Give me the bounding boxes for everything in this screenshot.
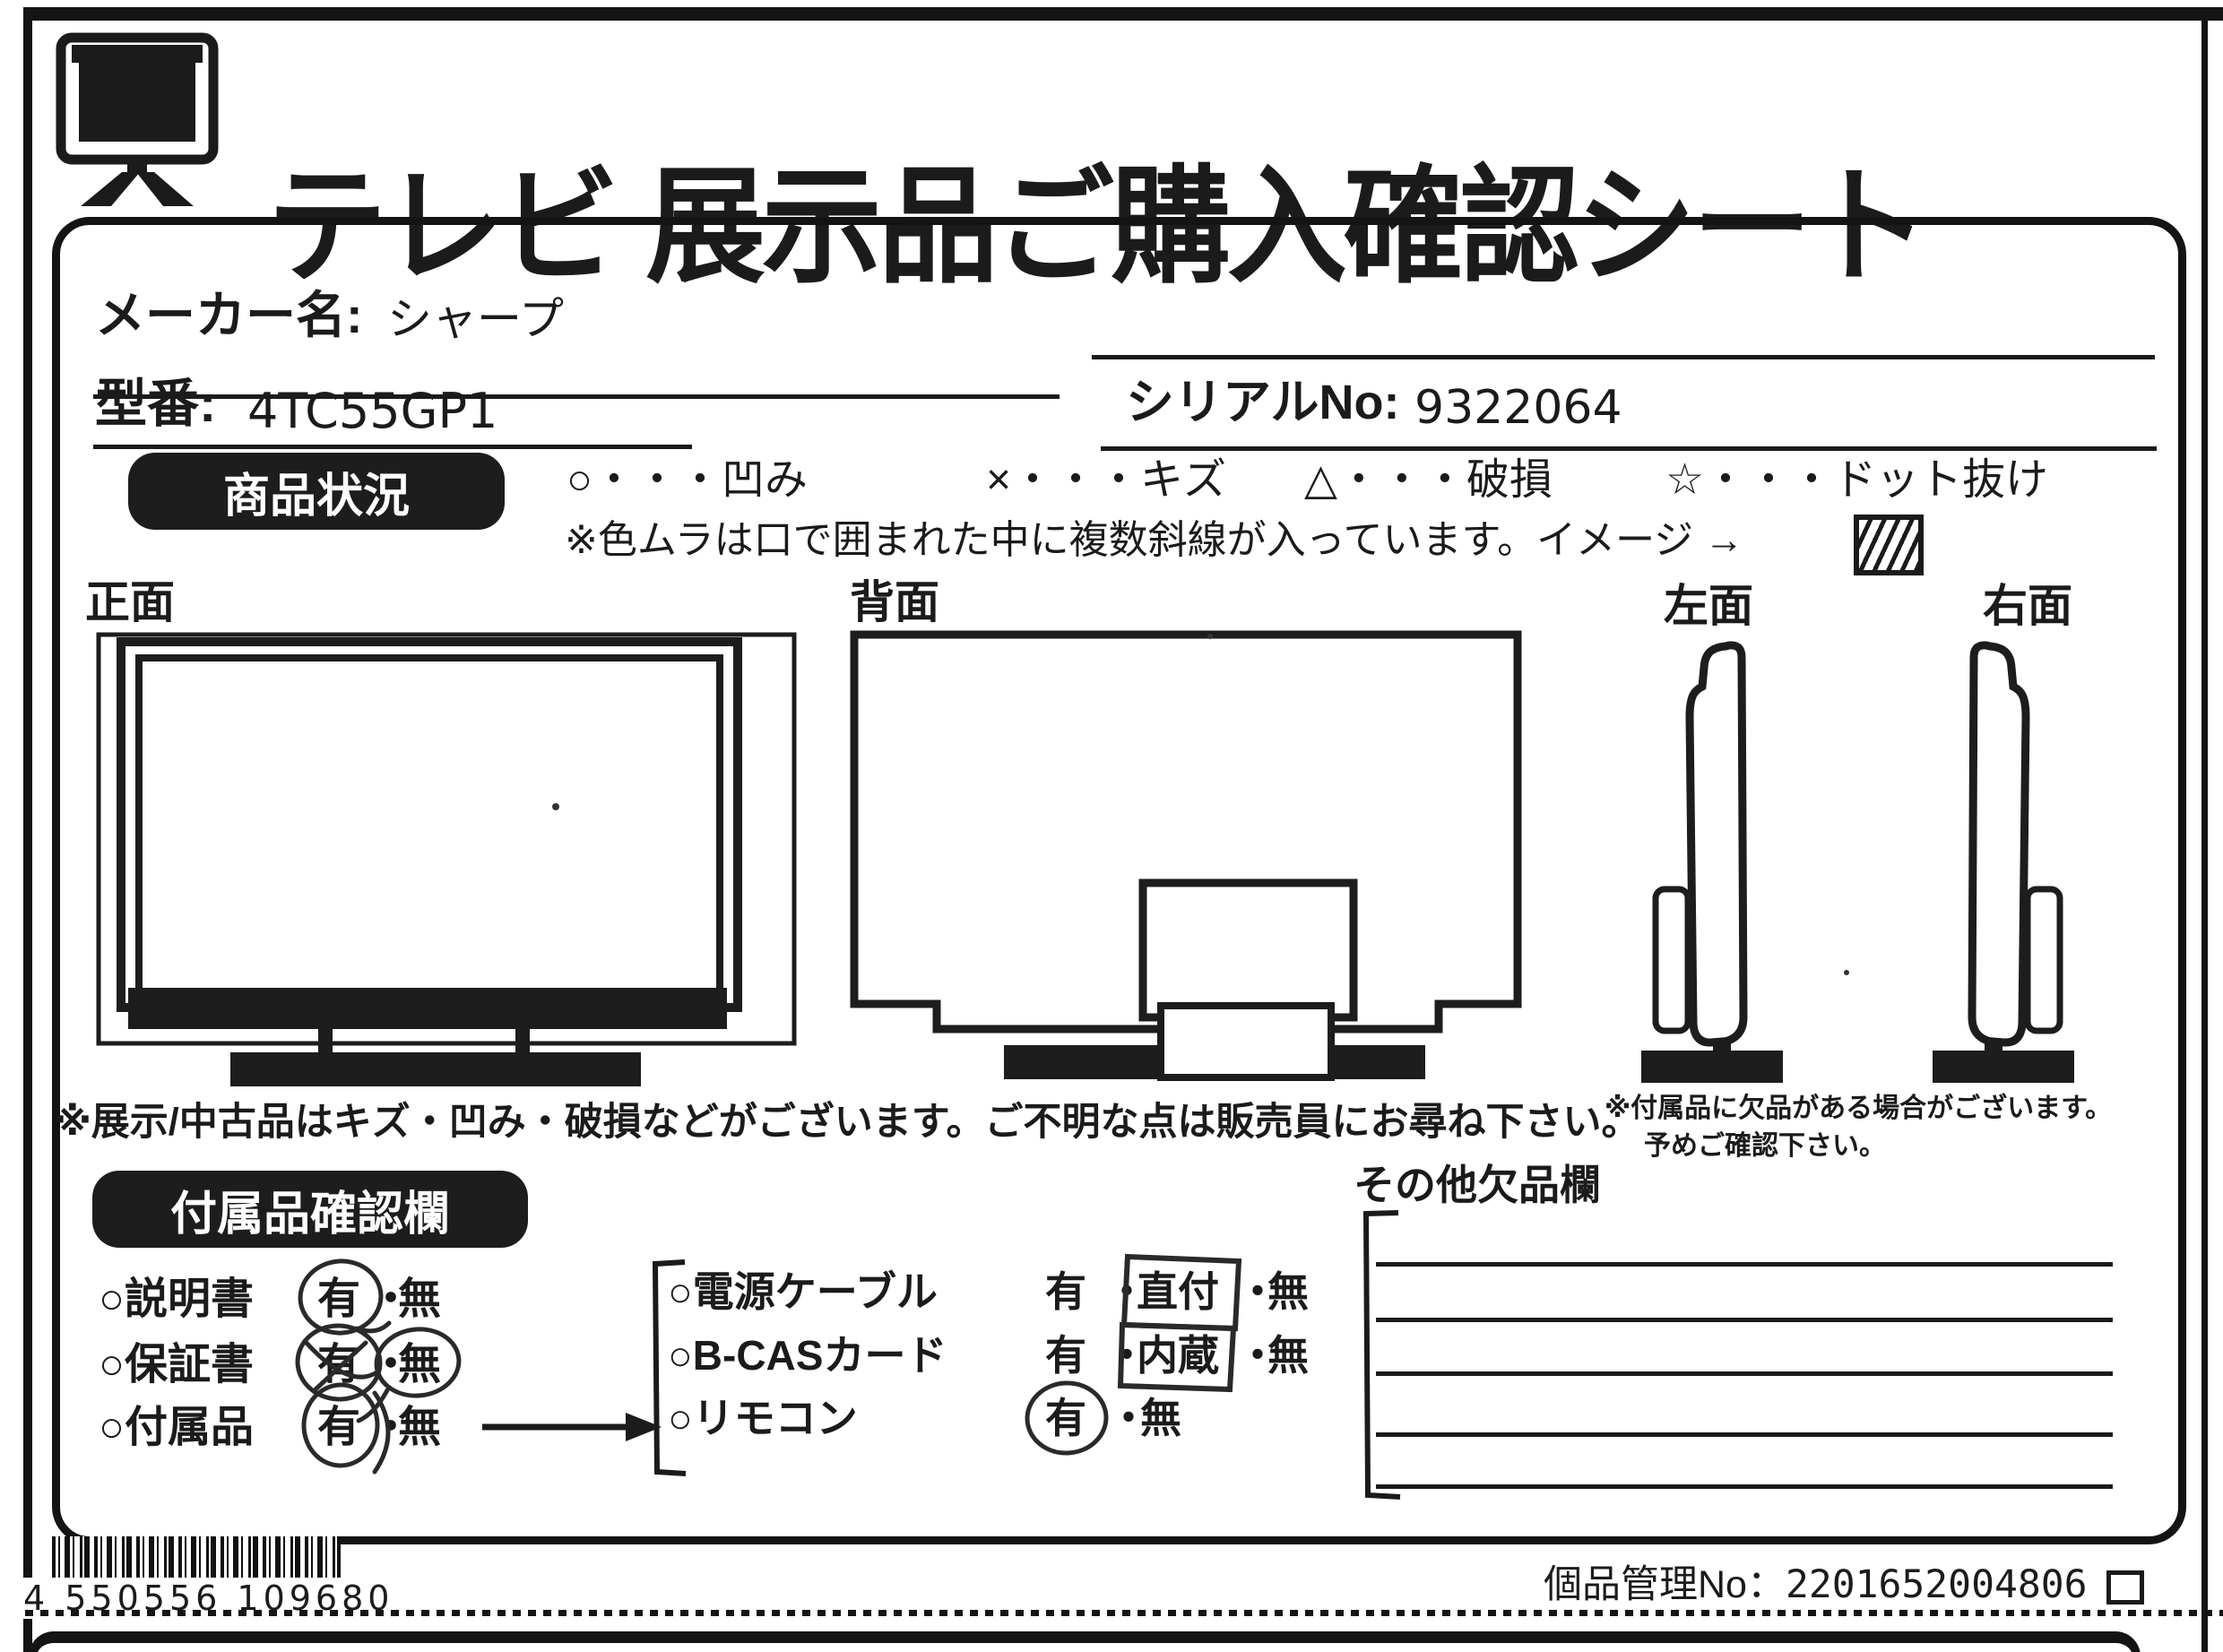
- warranty-no: 無: [398, 1340, 441, 1389]
- hatch-sample-box: [1854, 515, 1924, 575]
- accessory-shortage-note-line1: ※付属品に欠品がある場合がございます。: [1605, 1094, 2112, 1125]
- legend-dead-pixel: ☆・・・ドット抜け: [1665, 455, 2048, 505]
- accessories-badge: 付属品確認欄: [92, 1171, 528, 1248]
- sheet-top-border: [25, 7, 2223, 21]
- model-value: 4TC55GP1: [247, 384, 497, 439]
- maker-label: メーカー名:: [95, 287, 363, 344]
- missing-line-4: [1376, 1432, 2113, 1437]
- bcas-label: ○B-CASカード: [668, 1332, 947, 1380]
- power-cable-no: 無: [1267, 1268, 1309, 1316]
- missing-line-5: [1376, 1484, 2113, 1489]
- condition-badge: 商品状況: [128, 453, 505, 530]
- serial-value: 9322064: [1414, 382, 1622, 436]
- remote-label: ○リモコン: [668, 1395, 858, 1442]
- power-cable-direct: 直付: [1137, 1268, 1219, 1316]
- warranty-label: ○保証書: [99, 1340, 254, 1389]
- accessory-shortage-note-line2: 予めご確認下さい。: [1644, 1131, 1886, 1163]
- display-item-note: ※展示/中古品はキズ・凹み・破損などがございます。ご不明な点は販売員にお尋ね下さ…: [54, 1101, 1639, 1145]
- view-label-left: 左面: [1664, 581, 1753, 633]
- left-side-view-diagram: [1636, 627, 1788, 1089]
- sheet-right-border: [2201, 7, 2208, 1652]
- color-unevenness-note: ※色ムラは口で囲まれた中に複数斜線が入っています。イメージ →: [565, 518, 1743, 564]
- missing-line-1: [1376, 1262, 2113, 1267]
- missing-line-2: [1376, 1318, 2113, 1322]
- view-label-right: 右面: [1983, 581, 2072, 633]
- remote-yes: 有: [1045, 1395, 1086, 1442]
- model-underline: [93, 445, 692, 449]
- tv-monitor-icon: [52, 30, 258, 219]
- included-no: 無: [398, 1403, 441, 1452]
- condition-badge-label: 商品状況: [223, 458, 410, 525]
- serial-underline: [1101, 446, 2157, 451]
- included-label: ○付属品: [99, 1403, 254, 1452]
- bcas-builtin: 内蔵: [1137, 1332, 1219, 1380]
- legend-dent: ○・・・凹み: [567, 455, 808, 505]
- footer-checkbox: [2106, 1570, 2144, 1604]
- sheet-left-border: [23, 7, 32, 1652]
- missing-line-3: [1376, 1371, 2113, 1376]
- bcas-no: 無: [1267, 1332, 1309, 1380]
- manage-no: 個品管理No：2201652004806: [1544, 1563, 2088, 1607]
- perforation-dotted-line: [25, 1610, 2223, 1616]
- model-label: 型番:: [95, 375, 216, 435]
- back-view-diagram: [847, 627, 1528, 1089]
- power-cable-yes: 有: [1045, 1268, 1086, 1316]
- view-label-back: 背面: [850, 577, 939, 629]
- serial-label: シリアルNo:: [1126, 375, 1399, 430]
- maker-value: シャープ: [387, 294, 564, 346]
- legend-scratch: ×・・・キズ: [986, 455, 1226, 505]
- maker-underline: [93, 394, 1060, 399]
- manual-yes: 有: [317, 1275, 360, 1324]
- purchase-confirmation-sheet: テレビ 展示品ご購入確認シート メーカー名: シャープ 型番: 4TC55GP1…: [0, 0, 2223, 1652]
- remote-no: 無: [1140, 1395, 1181, 1442]
- manual-no: 無: [398, 1275, 441, 1324]
- manage-no-value: 2201652004806: [1786, 1562, 2088, 1607]
- power-cable-label: ○電源ケーブル: [668, 1268, 938, 1316]
- right-side-view-diagram: [1927, 627, 2080, 1089]
- included-yes: 有: [317, 1403, 360, 1452]
- legend-damage: △・・・破損: [1304, 455, 1553, 505]
- other-missing-title: その他欠品欄: [1354, 1162, 1601, 1209]
- view-label-front: 正面: [85, 577, 175, 629]
- bcas-yes: 有: [1045, 1332, 1086, 1380]
- barcode: [52, 1536, 341, 1583]
- right-field-line: [1092, 355, 2155, 359]
- manual-label: ○説明書: [99, 1275, 254, 1324]
- next-sheet-top-edge: [29, 1631, 2141, 1652]
- warranty-yes: 有: [317, 1340, 360, 1389]
- front-view-diagram: [94, 627, 802, 1094]
- accessories-badge-label: 付属品確認欄: [170, 1176, 450, 1243]
- manage-no-label: 個品管理No：: [1544, 1563, 1786, 1606]
